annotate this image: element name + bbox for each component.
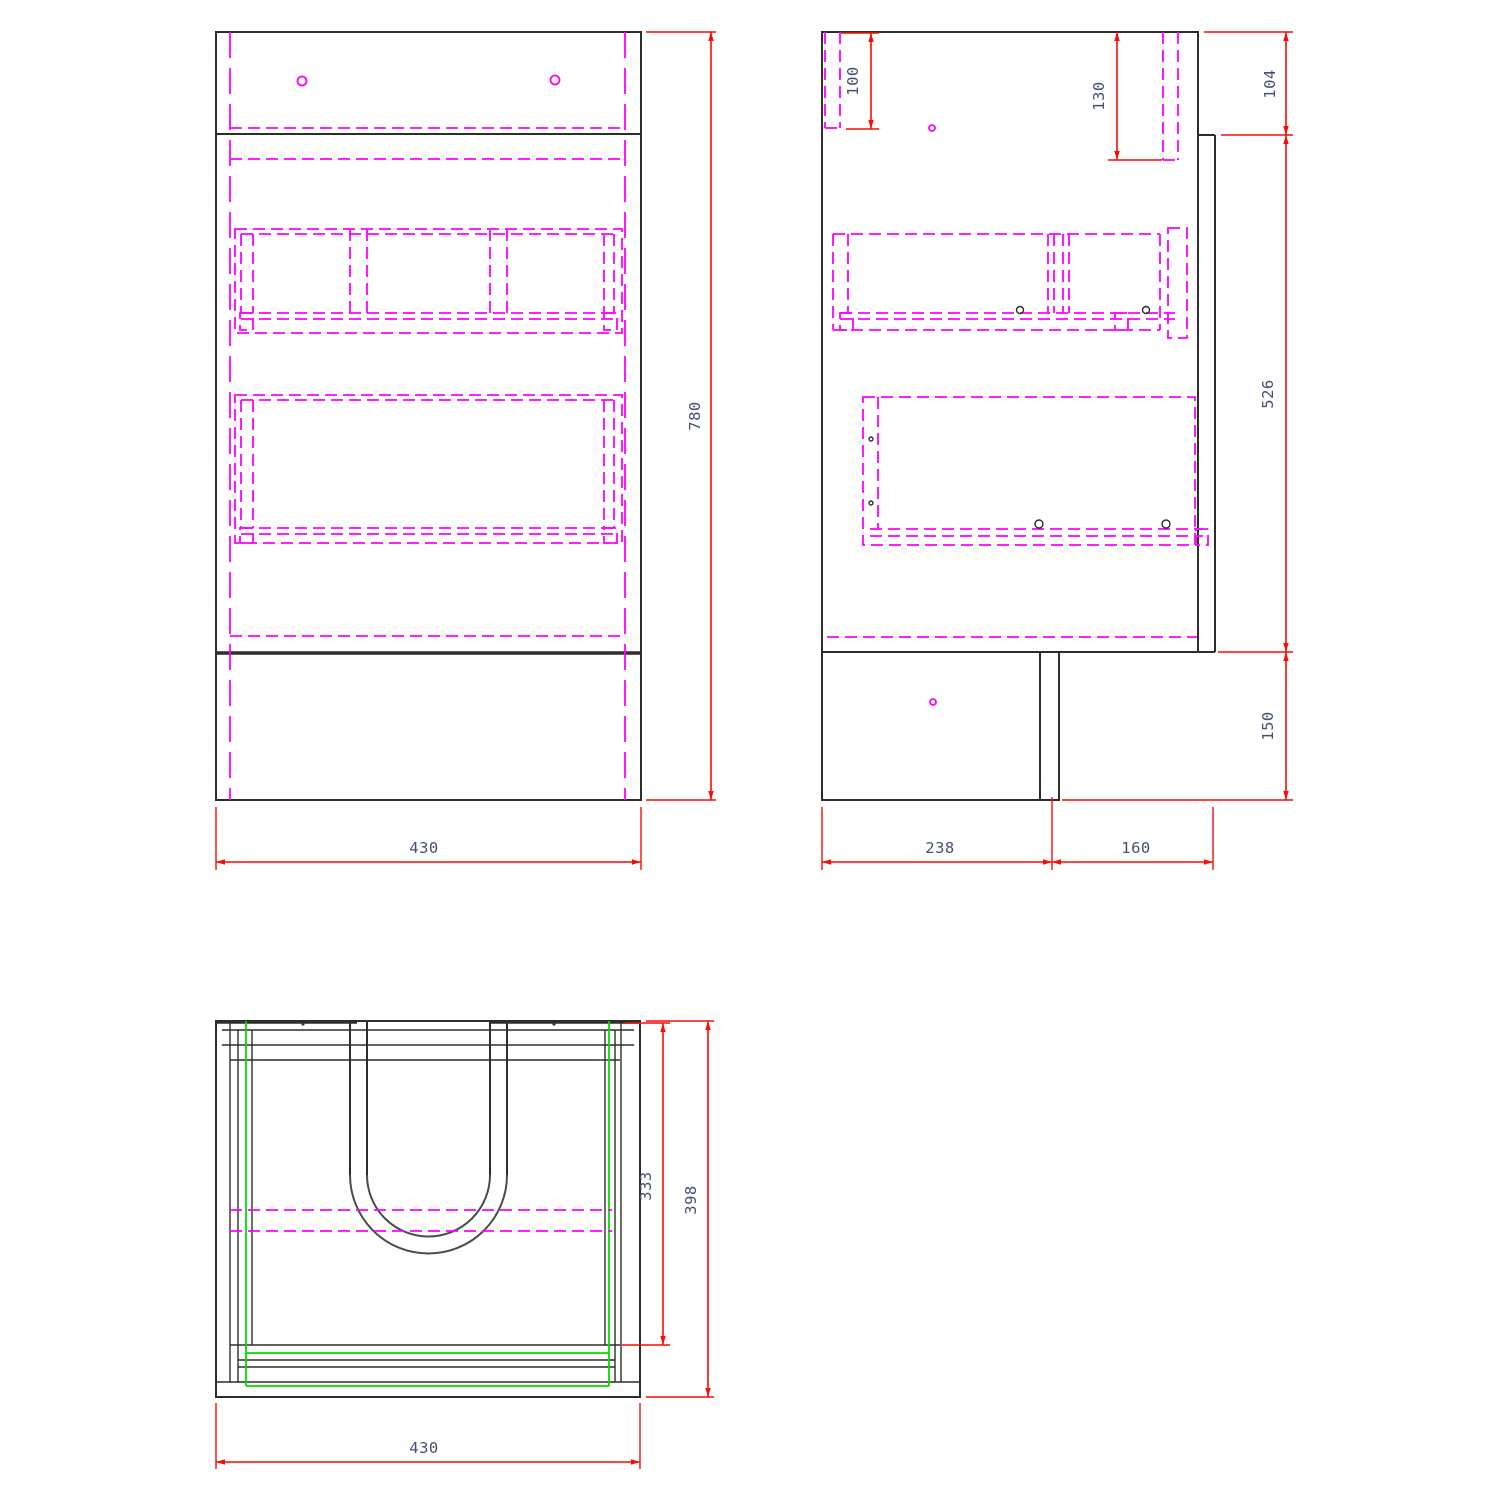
dimension-arrowhead	[660, 1023, 665, 1032]
dim-label-plinth-depth: 238	[925, 839, 955, 857]
screw-hole	[869, 437, 873, 441]
dim-plan-overall-depth: 398	[646, 1021, 714, 1397]
dimension-arrowhead	[216, 1459, 225, 1464]
dimension-arrowhead	[632, 859, 641, 864]
dimension-arrowhead	[1283, 32, 1288, 41]
dimension-arrowhead	[822, 859, 831, 864]
dimension-arrowhead	[1043, 859, 1052, 864]
dim-label-front-width: 430	[409, 839, 439, 857]
side-outline	[822, 32, 1215, 800]
dimension-arrowhead	[868, 120, 873, 129]
dim-label-rail-length: 130	[1090, 81, 1108, 111]
screw-hole	[1035, 520, 1043, 528]
screw-hole	[1162, 520, 1170, 528]
fixing-hole-marker	[929, 125, 935, 131]
dim-front-width: 430	[216, 807, 641, 870]
dim-plan-width: 430	[216, 1403, 640, 1469]
plan-highlight-green	[246, 1021, 609, 1386]
front-hidden-details	[230, 32, 625, 800]
dim-side-rail-length: 130	[1090, 32, 1162, 160]
drawing-svg: 780 430	[0, 0, 1500, 1500]
dimension-arrowhead	[1283, 135, 1288, 144]
side-lower-drawer-hidden	[863, 397, 1208, 545]
basin-waste-cutout	[350, 1021, 507, 1254]
dimension-arrowhead	[660, 1336, 665, 1345]
side-hidden-details	[825, 32, 1197, 705]
dim-side-body-height: 526	[1218, 135, 1293, 652]
dim-plan-cutout-depth: 333	[622, 1023, 670, 1345]
cutout-inner-arc	[367, 1175, 490, 1236]
dim-label-hang-rail-drop: 100	[844, 66, 862, 96]
dim-label-cutout-depth: 333	[637, 1171, 655, 1201]
dimension-arrowhead	[1283, 791, 1288, 800]
front-lower-drawer-hidden	[235, 395, 622, 543]
dim-side-plinth-height: 150	[1062, 652, 1293, 800]
dimension-arrowhead	[705, 1388, 710, 1397]
dimension-arrowhead	[1283, 643, 1288, 652]
dimension-arrowhead	[1114, 32, 1119, 41]
plan-view: 333 398 430	[216, 1021, 714, 1469]
dim-label-front-height: 780	[686, 401, 704, 431]
dim-side-hang-rail-drop: 100	[841, 33, 879, 129]
dim-label-overall-depth: 398	[682, 1185, 700, 1215]
cutout-outer-arc	[350, 1175, 507, 1254]
edge-marker-dot	[301, 1022, 304, 1025]
dimension-arrowhead	[1283, 126, 1288, 135]
front-view: 780 430	[216, 32, 716, 870]
dim-label-rear-recess: 160	[1121, 839, 1151, 857]
dim-front-height: 780	[646, 32, 716, 800]
dim-side-plinth-depth: 238	[822, 797, 1213, 870]
side-view: 100 130 104 526 150 238	[822, 32, 1293, 870]
front-outline	[216, 32, 641, 800]
dimension-arrowhead	[868, 33, 873, 42]
fixing-hole-marker	[298, 77, 307, 86]
dim-side-rear-recess: 160	[1052, 839, 1213, 865]
dimension-arrowhead	[1204, 859, 1213, 864]
side-upper-drawer-hidden	[833, 228, 1187, 338]
screw-hole	[869, 501, 873, 505]
dimension-arrowhead	[1114, 151, 1119, 160]
dimension-arrowhead	[1283, 652, 1288, 661]
dimension-arrowhead	[708, 32, 713, 41]
dimension-arrowhead	[1052, 859, 1061, 864]
dim-label-body-height: 526	[1259, 379, 1277, 409]
plan-hidden-details	[230, 1210, 612, 1231]
dim-label-plan-width: 430	[409, 1439, 439, 1457]
dimension-arrowhead	[708, 791, 713, 800]
edge-marker-dot	[552, 1022, 555, 1025]
dimension-arrowhead	[705, 1021, 710, 1030]
dimension-arrowhead	[216, 859, 225, 864]
fixing-hole-marker	[930, 699, 936, 705]
technical-drawing-canvas: 780 430	[0, 0, 1500, 1500]
dim-label-top-back-step: 104	[1261, 69, 1279, 99]
dimension-arrowhead	[631, 1459, 640, 1464]
plan-outline	[216, 1021, 640, 1397]
fixing-hole-marker	[551, 76, 560, 85]
front-upper-drawer-hidden	[235, 229, 622, 333]
dim-label-plinth-height: 150	[1259, 711, 1277, 741]
dim-side-top-back-step: 104	[1204, 32, 1293, 135]
